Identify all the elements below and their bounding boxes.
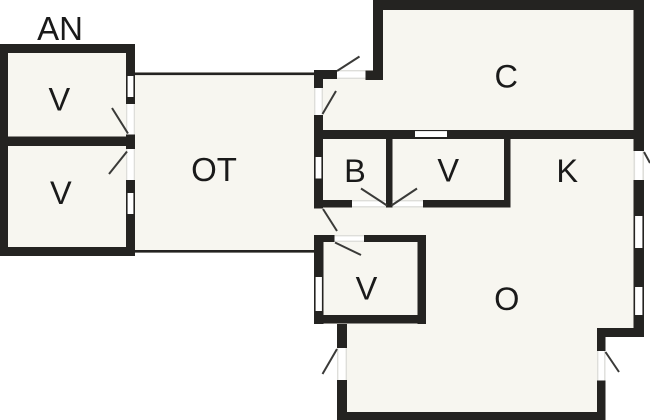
svg-text:AN: AN	[37, 10, 83, 47]
svg-text:B: B	[344, 153, 366, 189]
svg-text:C: C	[494, 58, 517, 94]
svg-text:V: V	[50, 175, 72, 211]
svg-text:V: V	[356, 270, 378, 306]
svg-text:O: O	[494, 281, 519, 317]
svg-text:V: V	[48, 82, 70, 118]
svg-text:V: V	[437, 152, 459, 188]
svg-text:K: K	[556, 153, 578, 189]
svg-text:OT: OT	[191, 151, 237, 188]
